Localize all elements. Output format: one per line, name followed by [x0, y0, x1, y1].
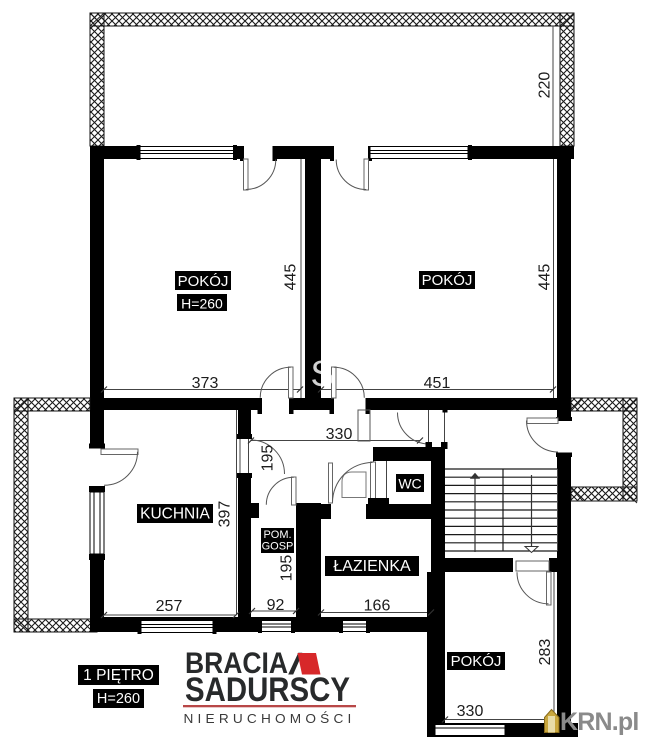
svg-text:257: 257 — [156, 598, 183, 615]
svg-text:1 PIĘTRO: 1 PIĘTRO — [83, 667, 154, 684]
svg-text:POKÓJ: POKÓJ — [451, 653, 502, 670]
svg-text:92: 92 — [267, 597, 285, 614]
svg-text:H=260: H=260 — [181, 296, 223, 312]
svg-text:397: 397 — [217, 501, 234, 528]
svg-text:330: 330 — [326, 426, 353, 443]
svg-text:195: 195 — [279, 555, 296, 582]
svg-text:POKÓJ: POKÓJ — [178, 273, 229, 290]
svg-text:451: 451 — [424, 375, 451, 392]
svg-text:330: 330 — [457, 703, 484, 720]
svg-text:POKÓJ: POKÓJ — [422, 272, 473, 289]
svg-text:POM.: POM. — [263, 529, 291, 541]
svg-text:166: 166 — [364, 598, 391, 615]
svg-text:SADURSCY: SADURSCY — [185, 671, 350, 709]
svg-text:445: 445 — [537, 264, 554, 291]
svg-text:KUCHNIA: KUCHNIA — [140, 506, 210, 523]
svg-text:KRN.pl: KRN.pl — [560, 708, 639, 736]
svg-text:H=260: H=260 — [97, 691, 140, 707]
svg-text:195: 195 — [260, 445, 277, 472]
svg-text:283: 283 — [537, 639, 554, 666]
svg-text:WC: WC — [398, 476, 421, 492]
svg-text:373: 373 — [192, 375, 219, 392]
svg-text:445: 445 — [283, 264, 300, 291]
svg-text:NIERUCHOMOŚCI: NIERUCHOMOŚCI — [184, 711, 356, 726]
svg-text:S: S — [310, 353, 334, 394]
svg-text:220: 220 — [537, 72, 554, 99]
svg-text:GOSP: GOSP — [262, 541, 294, 553]
svg-text:ŁAZIENKA: ŁAZIENKA — [333, 558, 411, 575]
